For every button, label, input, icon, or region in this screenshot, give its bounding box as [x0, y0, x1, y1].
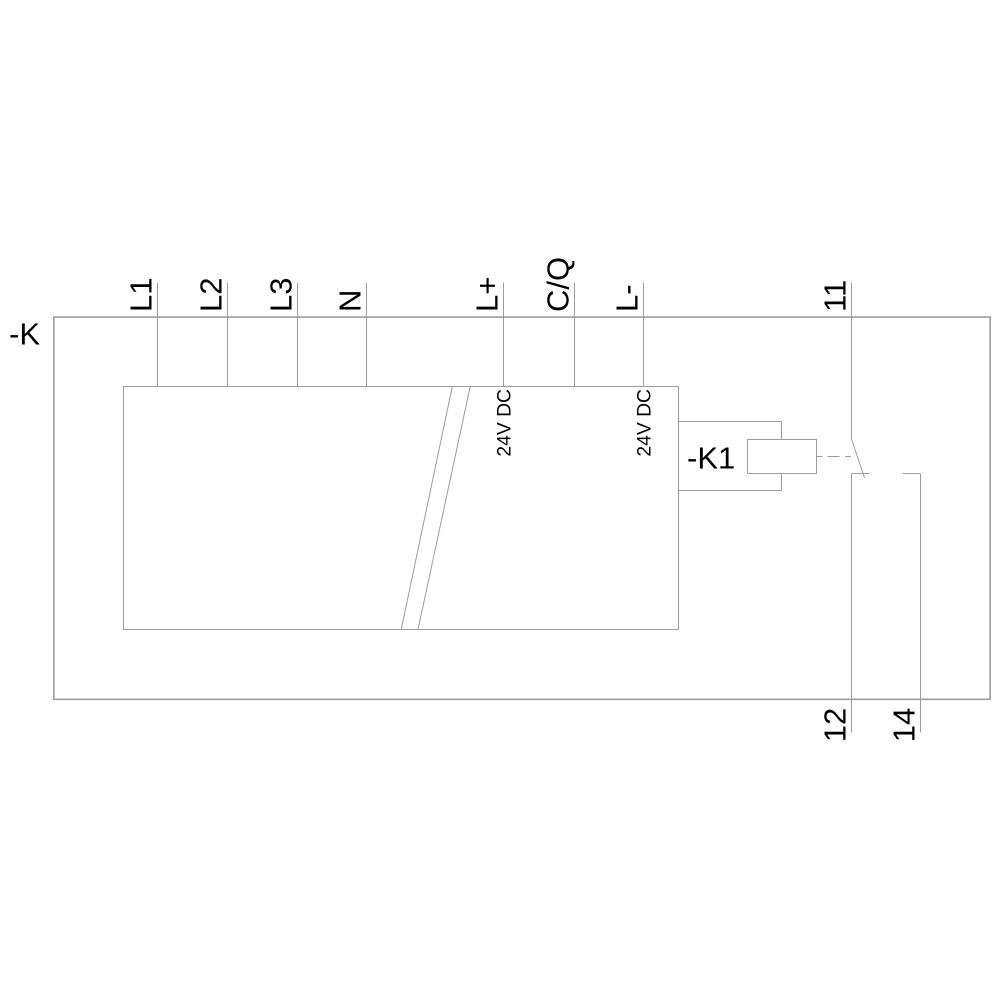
svg-text:24V DC: 24V DC — [494, 389, 515, 457]
svg-text:L-: L- — [610, 284, 645, 312]
svg-text:L3: L3 — [264, 278, 299, 312]
svg-text:N: N — [333, 290, 368, 312]
svg-text:12: 12 — [818, 708, 853, 742]
svg-text:L1: L1 — [124, 278, 159, 312]
svg-text:-K: -K — [9, 317, 40, 352]
svg-text:-K1: -K1 — [687, 441, 735, 476]
svg-text:14: 14 — [887, 708, 922, 742]
svg-text:L+: L+ — [470, 277, 505, 312]
svg-text:11: 11 — [818, 280, 853, 312]
svg-text:L2: L2 — [194, 278, 229, 312]
svg-text:24V DC: 24V DC — [634, 389, 655, 457]
svg-text:C/Q: C/Q — [541, 257, 576, 312]
